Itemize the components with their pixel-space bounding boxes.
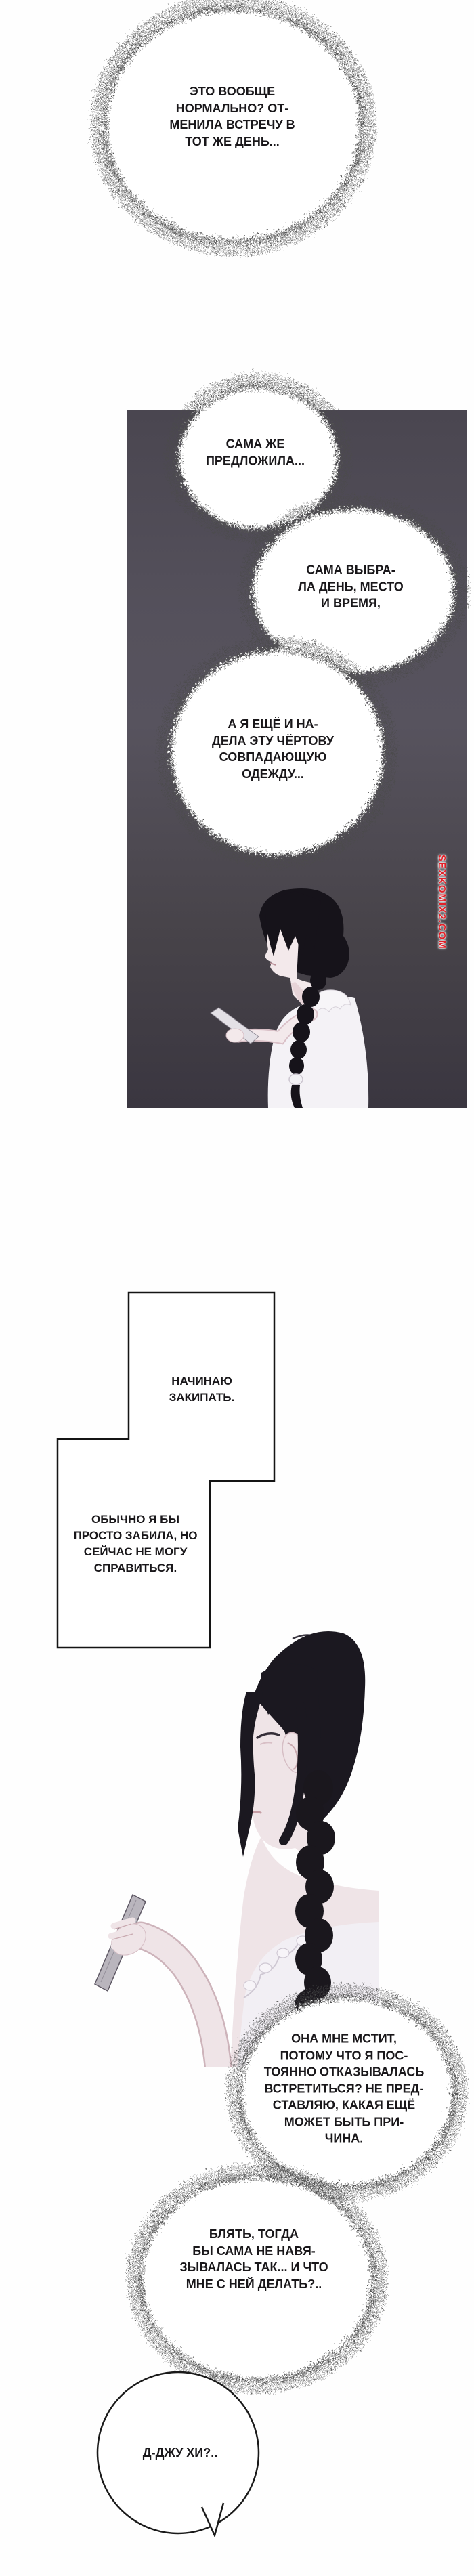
text-line: ЛА ДЕНЬ, МЕСТО: [298, 578, 404, 595]
text-line: ПРЕДЛОЖИЛА...: [206, 452, 305, 469]
girl2-arm-outline: [141, 1935, 218, 2067]
girl2-side-lock: [284, 1706, 303, 1841]
text-line: ОДЕЖДУ...: [212, 766, 334, 783]
text-line: САМА ЖЕ: [206, 436, 305, 453]
girl2-phone: [95, 1895, 146, 1991]
text-line: ПОТОМУ ЧТО Я ПОС-: [264, 2047, 425, 2064]
text-line: СПРАВИТЬСЯ.: [74, 1560, 198, 1576]
girl2-stray-hairs: [293, 1635, 362, 1712]
girl2-arm: [141, 1935, 218, 2067]
text-line: ПРОСТО ЗАБИЛА, НО: [74, 1528, 198, 1544]
text-line: ОНА МНЕ МСТИТ,: [264, 2030, 425, 2047]
text-line: А Я ЕЩЁ И НА-: [212, 716, 334, 733]
girl2-closed-eye: [257, 1734, 279, 1738]
text-line: ВСТРЕТИТЬСЯ? НЕ ПРЕД-: [264, 2080, 425, 2097]
girl2-lips: [251, 1812, 261, 1813]
text-line: ЧИНА.: [264, 2130, 425, 2147]
text-line: ОБЫЧНО Я БЫ: [74, 1511, 198, 1528]
text-line: СТАВЛЯЮ, КАКАЯ ЕЩЁ: [264, 2097, 425, 2113]
speech-bubble-7: [92, 2367, 264, 2556]
speech-bubble-5-text: ОНА МНЕ МСТИТ, ПОТОМУ ЧТО Я ПОС- ТОЯННО …: [264, 2030, 425, 2147]
text-line: СЕЙЧАС НЕ МОГУ: [74, 1544, 198, 1560]
text-line: НОРМАЛЬНО? ОТ-: [169, 100, 295, 117]
speech-bubble-2-text: САМА ЖЕ ПРЕДЛОЖИЛА...: [206, 436, 305, 469]
girl2-bangs: [261, 1664, 321, 1738]
girl2-nostril: [247, 1792, 249, 1794]
girl2-hand: [106, 1917, 152, 1961]
girl2-eyelid-line: [260, 1742, 272, 1744]
text-line: ЗАКИПАТЬ.: [169, 1390, 235, 1406]
text-line: МЕНИЛА ВСТРЕЧУ В: [169, 116, 295, 133]
girl2-front-strand: [238, 1692, 257, 1857]
thought-boxes-outline: [54, 1289, 281, 1652]
comic-page: SEXKOMIX2.COM НАЧИНАЮ ЗАКИПАТЬ. ОБЫЧНО Я…: [0, 0, 474, 2576]
text-line: ЭТО ВООБЩЕ: [169, 83, 295, 100]
girl2-ear: [279, 1730, 310, 1775]
text-line: И ВРЕМЯ,: [298, 595, 404, 611]
girl2-phone-edge: [101, 1900, 136, 1982]
speech-bubble-1-text: ЭТО ВООБЩЕ НОРМАЛЬНО? ОТ- МЕНИЛА ВСТРЕЧУ…: [169, 83, 295, 150]
speech-bubble-7-text: Д-ДЖУ ХИ?..: [143, 2445, 218, 2462]
text-line: Д-ДЖУ ХИ?..: [143, 2445, 218, 2462]
girl2-face: [244, 1704, 309, 1857]
text-line: МОЖЕТ БЫТЬ ПРИ-: [264, 2113, 425, 2130]
text-line: ТОЯННО ОТКАЗЫВАЛАСЬ: [264, 2063, 425, 2080]
watermark-text: SEXKOMIX2.COM: [436, 855, 448, 970]
text-line: БЛЯТЬ, ТОГДА: [179, 2226, 328, 2243]
text-line: НАЧИНАЮ: [169, 1373, 235, 1390]
speech-bubble-4-text: А Я ЕЩЁ И НА- ДЕЛА ЭТУ ЧЁРТОВУ СОВПАДАЮЩ…: [212, 716, 334, 782]
thought-box-1-text: НАЧИНАЮ ЗАКИПАТЬ.: [169, 1373, 235, 1406]
speech-bubble-3-text: САМА ВЫБРА- ЛА ДЕНЬ, МЕСТО И ВРЕМЯ,: [298, 561, 404, 611]
text-line: ЗЫВАЛАСЬ ТАК... И ЧТО: [179, 2259, 328, 2276]
thought-box-2-text: ОБЫЧНО Я БЫ ПРОСТО ЗАБИЛА, НО СЕЙЧАС НЕ …: [74, 1511, 198, 1576]
girl2-finger-lines: [112, 1924, 133, 1939]
text-line: ТОТ ЖЕ ДЕНЬ...: [169, 133, 295, 150]
text-line: САМА ВЫБРА-: [298, 561, 404, 578]
girl2-hair: [244, 1631, 366, 1843]
text-line: БЫ САМА НЕ НАВЯ-: [179, 2243, 328, 2260]
thought-box-shape: [58, 1293, 274, 1648]
text-line: ДЕЛА ЭТУ ЧЁРТОВУ: [212, 733, 334, 750]
girl2-fingers: [111, 1920, 135, 1946]
text-line: СОВПАДАЮЩУЮ: [212, 749, 334, 766]
text-line: МНЕ С НЕЙ ДЕЛАТЬ?..: [179, 2276, 328, 2293]
speech-bubble-6-text: БЛЯТЬ, ТОГДА БЫ САМА НЕ НАВЯ- ЗЫВАЛАСЬ Т…: [179, 2226, 328, 2292]
